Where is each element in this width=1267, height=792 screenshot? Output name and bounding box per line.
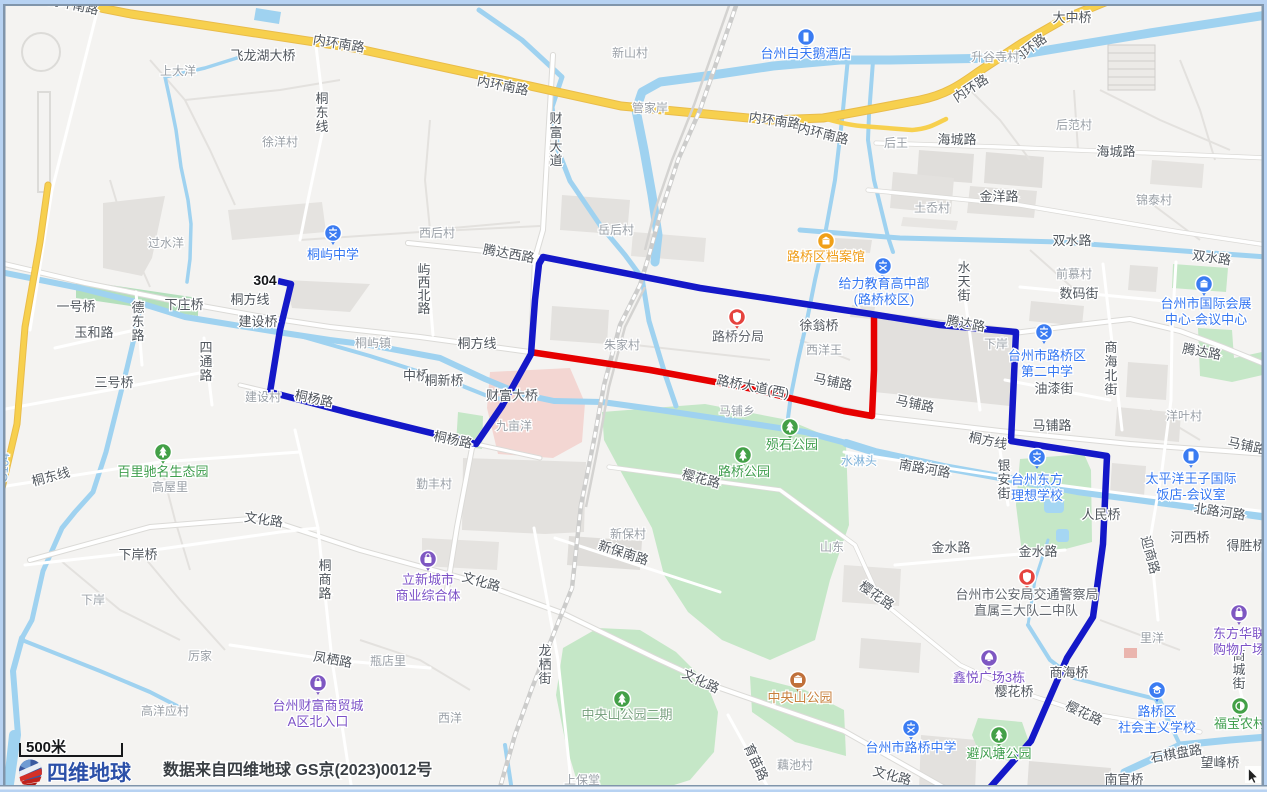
svg-text:海城路: 海城路	[1096, 144, 1135, 159]
svg-text:屿西北路: 屿西北路	[417, 262, 430, 316]
svg-text:玉和路: 玉和路	[74, 325, 113, 340]
svg-text:社会主义学校: 社会主义学校	[1118, 720, 1196, 735]
svg-text:桐方线: 桐方线	[457, 336, 496, 351]
svg-text:路桥区: 路桥区	[1137, 704, 1176, 719]
svg-text:百里驰名生态园: 百里驰名生态园	[117, 464, 208, 479]
svg-text:A区北入口: A区北入口	[288, 714, 349, 729]
svg-text:大中桥: 大中桥	[1052, 10, 1091, 25]
svg-text:中央山公园二期: 中央山公园二期	[581, 707, 672, 722]
svg-text:里洋: 里洋	[1140, 630, 1164, 645]
svg-text:建设村: 建设村	[245, 390, 281, 404]
svg-text:商业综合体: 商业综合体	[395, 588, 460, 603]
svg-text:路桥分局: 路桥分局	[712, 329, 764, 344]
svg-text:德东路: 德东路	[131, 300, 144, 343]
svg-text:路桥公园: 路桥公园	[718, 464, 770, 479]
svg-text:四通路: 四通路	[199, 340, 212, 383]
svg-text:下庄桥: 下庄桥	[164, 297, 203, 312]
svg-text:高洋应村: 高洋应村	[141, 703, 189, 718]
svg-text:桐东线: 桐东线	[315, 91, 328, 134]
svg-text:四维地球: 四维地球	[47, 761, 132, 785]
svg-text:岳后村: 岳后村	[598, 223, 634, 237]
svg-text:厉家: 厉家	[188, 648, 212, 663]
svg-text:中央山公园: 中央山公园	[767, 690, 832, 705]
svg-text:台州东方: 台州东方	[1011, 472, 1063, 487]
svg-text:直属三大队二中队: 直属三大队二中队	[974, 603, 1078, 618]
svg-text:高屋里: 高屋里	[152, 479, 188, 494]
svg-text:得胜桥: 得胜桥	[1226, 538, 1265, 553]
svg-text:藕池村: 藕池村	[777, 758, 813, 772]
svg-text:立新城市: 立新城市	[402, 572, 454, 587]
svg-text:前慕村: 前慕村	[1056, 266, 1092, 281]
svg-text:财富大桥: 财富大桥	[486, 388, 538, 403]
svg-text:朱家村: 朱家村	[604, 337, 640, 352]
svg-text:九亩洋: 九亩洋	[496, 418, 532, 433]
svg-text:双水路: 双水路	[1052, 233, 1091, 248]
svg-text:理想学校: 理想学校	[1011, 488, 1063, 503]
svg-text:锦泰村: 锦泰村	[1136, 193, 1172, 207]
svg-text:望峰桥: 望峰桥	[1200, 755, 1239, 770]
svg-text:台州白天鹅酒店: 台州白天鹅酒店	[760, 46, 851, 61]
svg-text:避风塘公园: 避风塘公园	[966, 746, 1031, 761]
svg-text:饭店-会议室: 饭店-会议室	[1156, 487, 1225, 502]
svg-text:龙栖街: 龙栖街	[538, 643, 551, 686]
svg-text:购物广场: 购物广场	[1213, 642, 1265, 657]
svg-text:(路桥校区): (路桥校区)	[854, 292, 915, 307]
svg-text:人民桥: 人民桥	[1081, 507, 1120, 522]
svg-text:台州市公安局交通警察局: 台州市公安局交通警察局	[955, 587, 1098, 602]
svg-text:水淋头: 水淋头	[841, 454, 877, 468]
svg-text:桐屿镇: 桐屿镇	[355, 336, 391, 350]
svg-text:西洋王: 西洋王	[806, 342, 842, 357]
svg-text:桐屿中学: 桐屿中学	[307, 247, 359, 262]
svg-text:马铺路: 马铺路	[1032, 418, 1071, 433]
svg-text:管家岸: 管家岸	[632, 100, 668, 115]
svg-text:建设桥: 建设桥	[238, 314, 277, 329]
svg-text:金水路: 金水路	[1018, 544, 1057, 559]
svg-text:304: 304	[253, 272, 277, 288]
svg-text:徐洋村: 徐洋村	[262, 134, 298, 149]
svg-text:南官桥: 南官桥	[1104, 772, 1143, 787]
svg-text:过水洋: 过水洋	[148, 235, 184, 250]
svg-text:太平洋王子国际: 太平洋王子国际	[1145, 471, 1236, 486]
svg-text:新山村: 新山村	[612, 45, 648, 60]
svg-text:数据来自四维地球 GS京(2023)0012号: 数据来自四维地球 GS京(2023)0012号	[163, 760, 432, 779]
svg-text:后范村: 后范村	[1056, 118, 1092, 132]
svg-text:第二中学: 第二中学	[1021, 364, 1073, 379]
svg-text:数码街: 数码街	[1059, 286, 1098, 301]
svg-text:樱花桥: 樱花桥	[994, 684, 1033, 699]
svg-text:桐商路: 桐商路	[318, 558, 331, 601]
svg-text:商海北街: 商海北街	[1104, 340, 1117, 397]
svg-text:台州市国际会展: 台州市国际会展	[1160, 296, 1251, 311]
svg-text:油漆街: 油漆街	[1034, 381, 1073, 396]
svg-text:台州市路桥区: 台州市路桥区	[1008, 348, 1086, 363]
svg-text:马铺乡: 马铺乡	[719, 404, 755, 418]
svg-text:给力教育高中部: 给力教育高中部	[838, 276, 929, 291]
svg-text:台州市路桥中学: 台州市路桥中学	[865, 740, 956, 755]
svg-text:500米: 500米	[26, 738, 67, 756]
svg-text:东方华联: 东方华联	[1213, 626, 1265, 641]
svg-text:飞龙湖大桥: 飞龙湖大桥	[230, 48, 295, 63]
svg-text:勤丰村: 勤丰村	[416, 477, 452, 491]
svg-text:银安街: 银安街	[997, 458, 1010, 501]
svg-text:河西桥: 河西桥	[1170, 530, 1209, 545]
svg-text:金水路: 金水路	[931, 540, 970, 555]
svg-text:西洋: 西洋	[438, 710, 462, 725]
svg-text:鑫悦广场3栋: 鑫悦广场3栋	[953, 670, 1025, 685]
svg-text:下岸桥: 下岸桥	[118, 547, 157, 562]
svg-text:西后村: 西后村	[419, 226, 455, 240]
svg-text:中心-会议中心: 中心-会议中心	[1165, 312, 1247, 327]
svg-text:商海桥: 商海桥	[1049, 665, 1088, 680]
svg-text:后王: 后王	[884, 136, 908, 150]
svg-text:桐方线: 桐方线	[230, 292, 269, 307]
svg-text:金洋路: 金洋路	[979, 189, 1018, 204]
svg-text:山东: 山东	[820, 540, 844, 554]
svg-text:殒石公园: 殒石公园	[766, 437, 818, 452]
svg-text:路桥区档案馆: 路桥区档案馆	[787, 249, 865, 264]
svg-text:下岸: 下岸	[81, 593, 105, 607]
svg-text:新保村: 新保村	[610, 526, 646, 541]
svg-text:台州财富商贸城: 台州财富商贸城	[272, 698, 363, 713]
svg-text:财富大道: 财富大道	[549, 111, 562, 168]
svg-text:水天街: 水天街	[957, 260, 970, 303]
svg-text:下岸: 下岸	[984, 337, 1008, 351]
svg-text:一号桥: 一号桥	[56, 299, 95, 314]
svg-text:上大洋: 上大洋	[160, 63, 196, 78]
svg-text:海城路: 海城路	[937, 132, 976, 147]
svg-text:土岙村: 土岙村	[914, 201, 950, 215]
svg-text:瓶店里: 瓶店里	[370, 654, 406, 668]
svg-text:桐新桥: 桐新桥	[424, 373, 463, 388]
svg-text:洋叶村: 洋叶村	[1166, 408, 1202, 423]
svg-text:徐翁桥: 徐翁桥	[799, 318, 838, 333]
svg-text:三号桥: 三号桥	[94, 375, 133, 390]
svg-text:升谷寺村: 升谷寺村	[971, 50, 1019, 64]
svg-text:上保堂: 上保堂	[564, 773, 600, 787]
svg-text:福宝农村: 福宝农村	[1214, 716, 1266, 731]
